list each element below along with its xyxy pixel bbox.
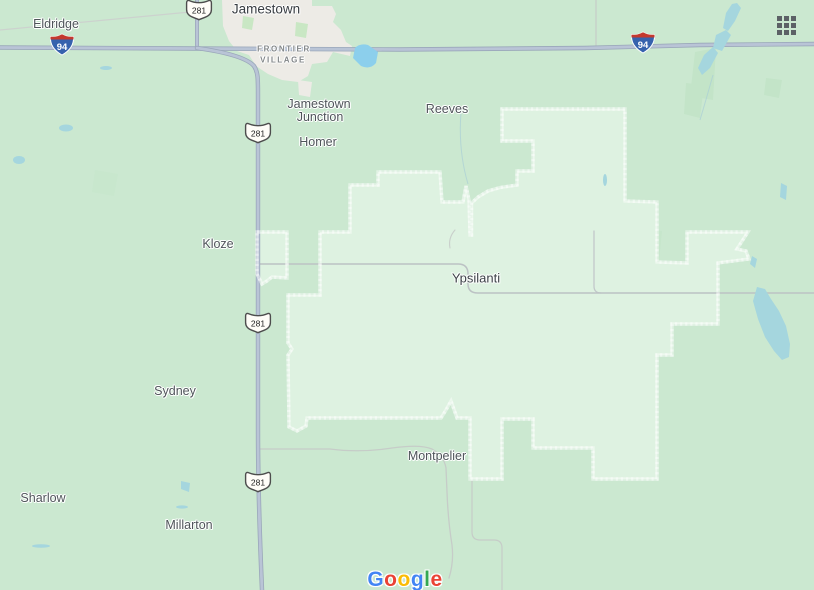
google-logo-letter: o bbox=[397, 568, 410, 590]
map-artwork bbox=[0, 0, 814, 590]
apps-grid-icon[interactable] bbox=[777, 16, 796, 35]
place-label-jamestown-junction-line2[interactable]: Junction bbox=[297, 110, 344, 124]
us-281-route-shield-a: 281 bbox=[243, 121, 273, 150]
place-label-montpelier[interactable]: Montpelier bbox=[408, 449, 466, 463]
google-logo-letter: e bbox=[430, 568, 442, 590]
place-label-jamestown[interactable]: Jamestown bbox=[232, 2, 300, 17]
google-maps-canvas[interactable]: 281 94 94 281 281 281 bbox=[0, 0, 814, 590]
route-number: 94 bbox=[57, 42, 68, 53]
us-281-route-shield-b: 281 bbox=[243, 311, 273, 340]
area-label-frontier-village-line1: FRONTIER bbox=[257, 45, 311, 54]
i-94-route-shield-east: 94 bbox=[629, 31, 657, 60]
place-label-kloze[interactable]: Kloze bbox=[202, 237, 233, 251]
google-logo[interactable]: Google bbox=[367, 568, 442, 590]
us-281-route-shield-c: 281 bbox=[243, 470, 273, 499]
google-logo-letter: G bbox=[367, 568, 384, 590]
place-label-millarton[interactable]: Millarton bbox=[165, 518, 212, 532]
place-label-eldridge[interactable]: Eldridge bbox=[33, 17, 79, 31]
place-label-homer[interactable]: Homer bbox=[299, 135, 337, 149]
place-label-ypsilanti[interactable]: Ypsilanti bbox=[452, 271, 500, 286]
place-label-jamestown-junction-line1[interactable]: Jamestown bbox=[287, 97, 350, 111]
route-number: 94 bbox=[638, 40, 649, 51]
route-number: 281 bbox=[192, 6, 206, 16]
route-number: 281 bbox=[251, 478, 265, 488]
google-logo-letter: g bbox=[411, 568, 424, 590]
place-label-sydney[interactable]: Sydney bbox=[154, 384, 196, 398]
route-number: 281 bbox=[251, 129, 265, 139]
route-number: 281 bbox=[251, 319, 265, 329]
i-94-route-shield: 94 bbox=[48, 33, 76, 62]
area-label-frontier-village-line2: VILLAGE bbox=[260, 56, 306, 65]
place-label-sharlow[interactable]: Sharlow bbox=[20, 491, 65, 505]
google-logo-letter: o bbox=[384, 568, 397, 590]
place-label-reeves[interactable]: Reeves bbox=[426, 102, 468, 116]
us-281-route-shield: 281 bbox=[184, 0, 214, 27]
